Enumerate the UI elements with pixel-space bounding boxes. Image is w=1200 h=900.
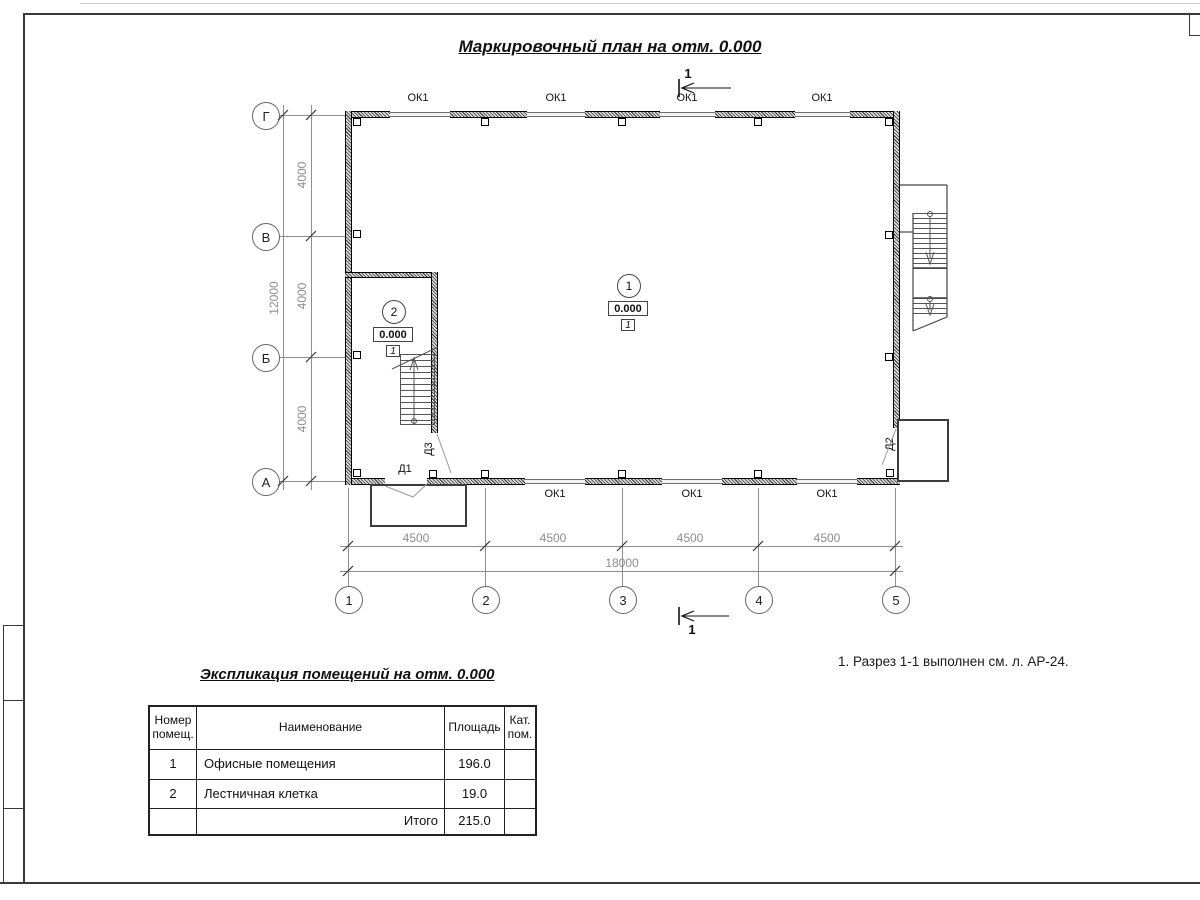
axis-row-label: А <box>262 475 271 490</box>
pier <box>353 469 361 477</box>
window-opening <box>795 112 850 117</box>
drawing-sheet: Маркировочный план на отм. 0.000 <box>0 0 1200 900</box>
stair-treads <box>913 298 947 318</box>
dimension-line <box>311 105 312 490</box>
axis-col-label: 2 <box>482 593 489 608</box>
window-label: ОК1 <box>534 92 578 104</box>
door-label: Д3 <box>423 431 435 467</box>
column-header: Кат. пом. <box>505 707 535 750</box>
pier <box>754 470 762 478</box>
frame-corner-box-hline <box>1189 35 1200 36</box>
axis-col-label: 3 <box>619 593 626 608</box>
section-mark-label: 1 <box>684 622 700 637</box>
extension-line <box>758 488 759 587</box>
column-header: Номер помещ. <box>150 707 197 750</box>
window-opening <box>660 112 715 117</box>
wall-segment <box>450 111 527 118</box>
room-number: 2 <box>391 305 398 319</box>
axis-row-label: Б <box>262 351 271 366</box>
table-cell-empty <box>505 809 535 834</box>
axis-circle-col: 2 <box>472 586 500 614</box>
frame-margin-column-line <box>3 625 4 883</box>
pier <box>618 470 626 478</box>
window-label: ОК1 <box>396 92 440 104</box>
table-cell-category <box>505 780 535 809</box>
dimension-text: 18000 <box>592 556 652 570</box>
room-schedule-table: Номер помещ. Наименование Площадь Кат. п… <box>148 705 537 836</box>
table-total-label: Итого <box>197 809 445 834</box>
drawing-note: 1. Разрез 1-1 выполнен см. л. АР-24. <box>838 654 1069 669</box>
room-elevation-box: 0.000 <box>373 327 413 342</box>
axis-circle-row: В <box>252 223 280 251</box>
room-number-circle: 2 <box>382 300 406 324</box>
door-label: Д1 <box>385 463 425 475</box>
frame-bottom-line <box>0 882 1200 884</box>
table-cell-area: 196.0 <box>445 750 505 780</box>
dimension-text: 4500 <box>386 531 446 545</box>
column-header: Площадь <box>445 707 505 750</box>
wall-segment <box>585 478 662 485</box>
window-label: ОК1 <box>800 92 844 104</box>
room-number: 1 <box>626 279 633 293</box>
paper-edge-line <box>80 3 1200 4</box>
pier <box>754 118 762 126</box>
pier <box>885 353 893 361</box>
axis-col-label: 5 <box>892 593 899 608</box>
pier <box>481 118 489 126</box>
dimension-text: 4000 <box>295 389 309 449</box>
table-cell-number: 1 <box>150 750 197 780</box>
table-total-area: 215.0 <box>445 809 505 834</box>
frame-top-line <box>23 13 1200 15</box>
table-cell-name: Офисные помещения <box>197 750 445 780</box>
stair-treads <box>913 213 947 269</box>
axis-circle-col: 5 <box>882 586 910 614</box>
extension-line <box>895 488 896 587</box>
frame-margin-divider <box>3 700 24 701</box>
stair-treads <box>400 354 435 425</box>
window-label: ОК1 <box>670 488 714 500</box>
plan-title: Маркировочный план на отм. 0.000 <box>420 37 800 57</box>
column-header: Наименование <box>197 707 445 750</box>
floor-type-box: 1 <box>386 345 400 357</box>
axis-circle-row: А <box>252 468 280 496</box>
wall-segment <box>893 111 900 428</box>
stairwell-wall <box>345 272 438 278</box>
window-opening <box>390 112 450 117</box>
wall-segment <box>857 478 900 485</box>
axis-col-label: 4 <box>755 593 762 608</box>
table-cell-name: Лестничная клетка <box>197 780 445 809</box>
pier <box>618 118 626 126</box>
frame-corner-box-vline <box>1189 14 1190 35</box>
extension-line <box>622 488 623 587</box>
axis-circle-col: 3 <box>609 586 637 614</box>
pier <box>886 469 894 477</box>
dimension-text: 4500 <box>797 531 857 545</box>
window-opening <box>662 479 722 484</box>
axis-circle-row: Б <box>252 344 280 372</box>
wall-segment <box>715 111 795 118</box>
dimension-text: 4000 <box>295 266 309 326</box>
side-porch <box>897 419 949 482</box>
dimension-line <box>340 546 903 547</box>
door-label: Д2 <box>884 426 896 462</box>
room-elevation: 0.000 <box>614 303 642 315</box>
dimension-line <box>283 105 284 490</box>
room-elevation: 0.000 <box>379 329 407 341</box>
pier <box>885 118 893 126</box>
pier <box>481 470 489 478</box>
window-label: ОК1 <box>805 488 849 500</box>
frame-margin-divider <box>3 808 24 809</box>
axis-row-label: Г <box>262 109 269 124</box>
table-cell-category <box>505 750 535 780</box>
wall-segment <box>722 478 797 485</box>
window-label: ОК1 <box>533 488 577 500</box>
extension-line <box>348 488 349 587</box>
dimension-text: 4500 <box>660 531 720 545</box>
window-label: ОК1 <box>665 92 709 104</box>
dimension-line <box>340 571 903 572</box>
axis-col-label: 1 <box>345 593 352 608</box>
pier <box>353 230 361 238</box>
dimension-text: 12000 <box>267 268 281 328</box>
extension-line <box>485 488 486 587</box>
schedule-title: Экспликация помещений на отм. 0.000 <box>200 666 495 683</box>
section-mark-label: 1 <box>680 66 696 81</box>
pier <box>353 118 361 126</box>
dimension-text: 4500 <box>523 531 583 545</box>
frame-left-line <box>23 13 25 883</box>
room-elevation-box: 0.000 <box>608 301 648 316</box>
floor-type: 1 <box>625 320 631 331</box>
floor-type-box: 1 <box>621 319 635 331</box>
axis-circle-col: 4 <box>745 586 773 614</box>
room-number-circle: 1 <box>617 274 641 298</box>
wall-segment <box>585 111 660 118</box>
frame-margin-divider <box>3 625 24 626</box>
table-cell-empty <box>150 809 197 834</box>
dimension-text: 4000 <box>295 145 309 205</box>
floor-type: 1 <box>390 346 396 357</box>
table-cell-number: 2 <box>150 780 197 809</box>
entrance-porch <box>370 484 467 527</box>
pier <box>885 231 893 239</box>
pier <box>353 351 361 359</box>
window-opening <box>525 479 585 484</box>
window-opening <box>797 479 857 484</box>
pier <box>429 470 437 478</box>
axis-circle-row: Г <box>252 102 280 130</box>
axis-circle-col: 1 <box>335 586 363 614</box>
wall-segment <box>345 111 352 485</box>
axis-row-label: В <box>262 230 271 245</box>
window-opening <box>527 112 585 117</box>
table-cell-area: 19.0 <box>445 780 505 809</box>
